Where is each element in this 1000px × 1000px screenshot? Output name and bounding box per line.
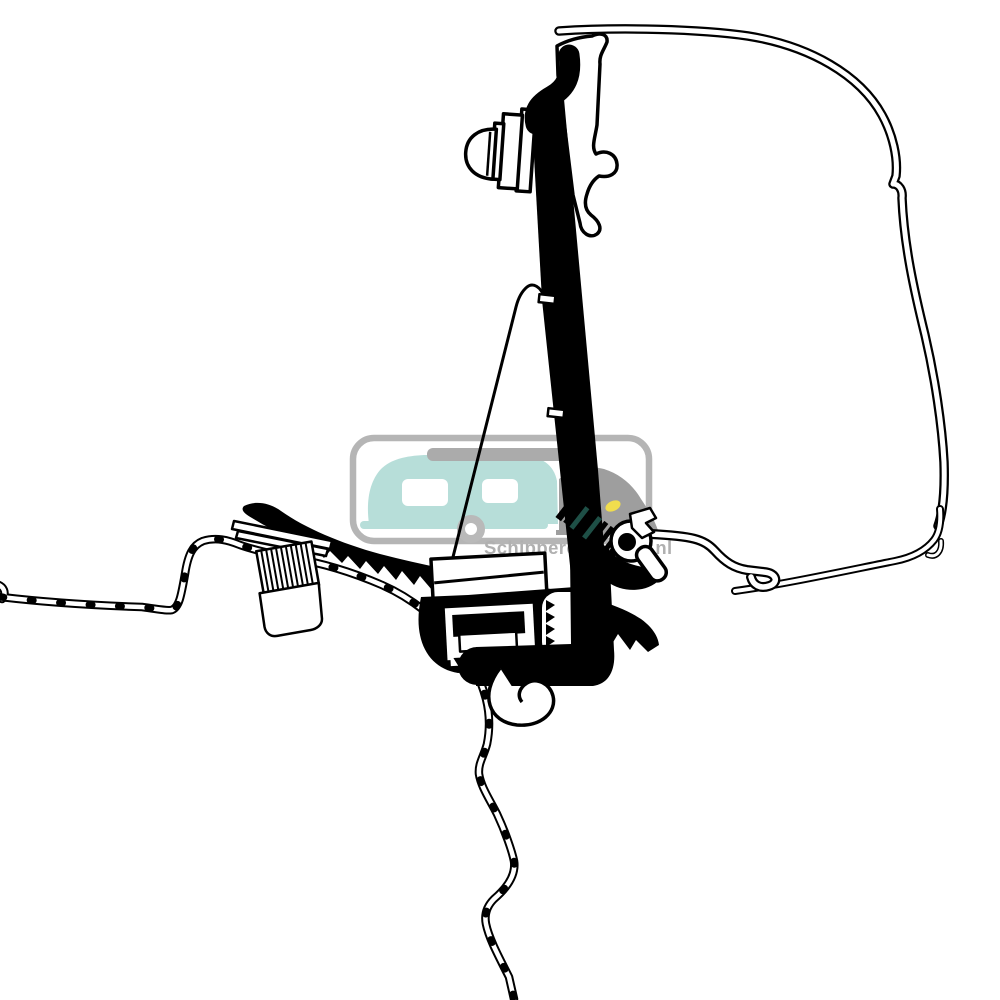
ribbed-nut bbox=[251, 542, 326, 638]
clamp-foot-cap bbox=[458, 647, 496, 685]
product-technical-drawing: Schippercaravans.nl bbox=[0, 0, 1000, 1000]
caravan-window-left bbox=[402, 479, 448, 506]
screw-head bbox=[618, 533, 636, 551]
awning-adapter-cross-section: Schippercaravans.nl bbox=[0, 0, 1000, 1000]
caravan-wheel bbox=[461, 519, 481, 539]
bracket-notch-lower bbox=[548, 408, 565, 418]
cassette-lower-lip-outline bbox=[735, 509, 940, 591]
nut-skirt bbox=[259, 583, 327, 638]
bolt-dome-head bbox=[464, 127, 496, 179]
bracket-notch-upper bbox=[539, 294, 556, 304]
caravan-window-right bbox=[482, 479, 518, 503]
cassette-lower-lip-core bbox=[735, 509, 940, 591]
caravan-baseline bbox=[360, 521, 548, 529]
